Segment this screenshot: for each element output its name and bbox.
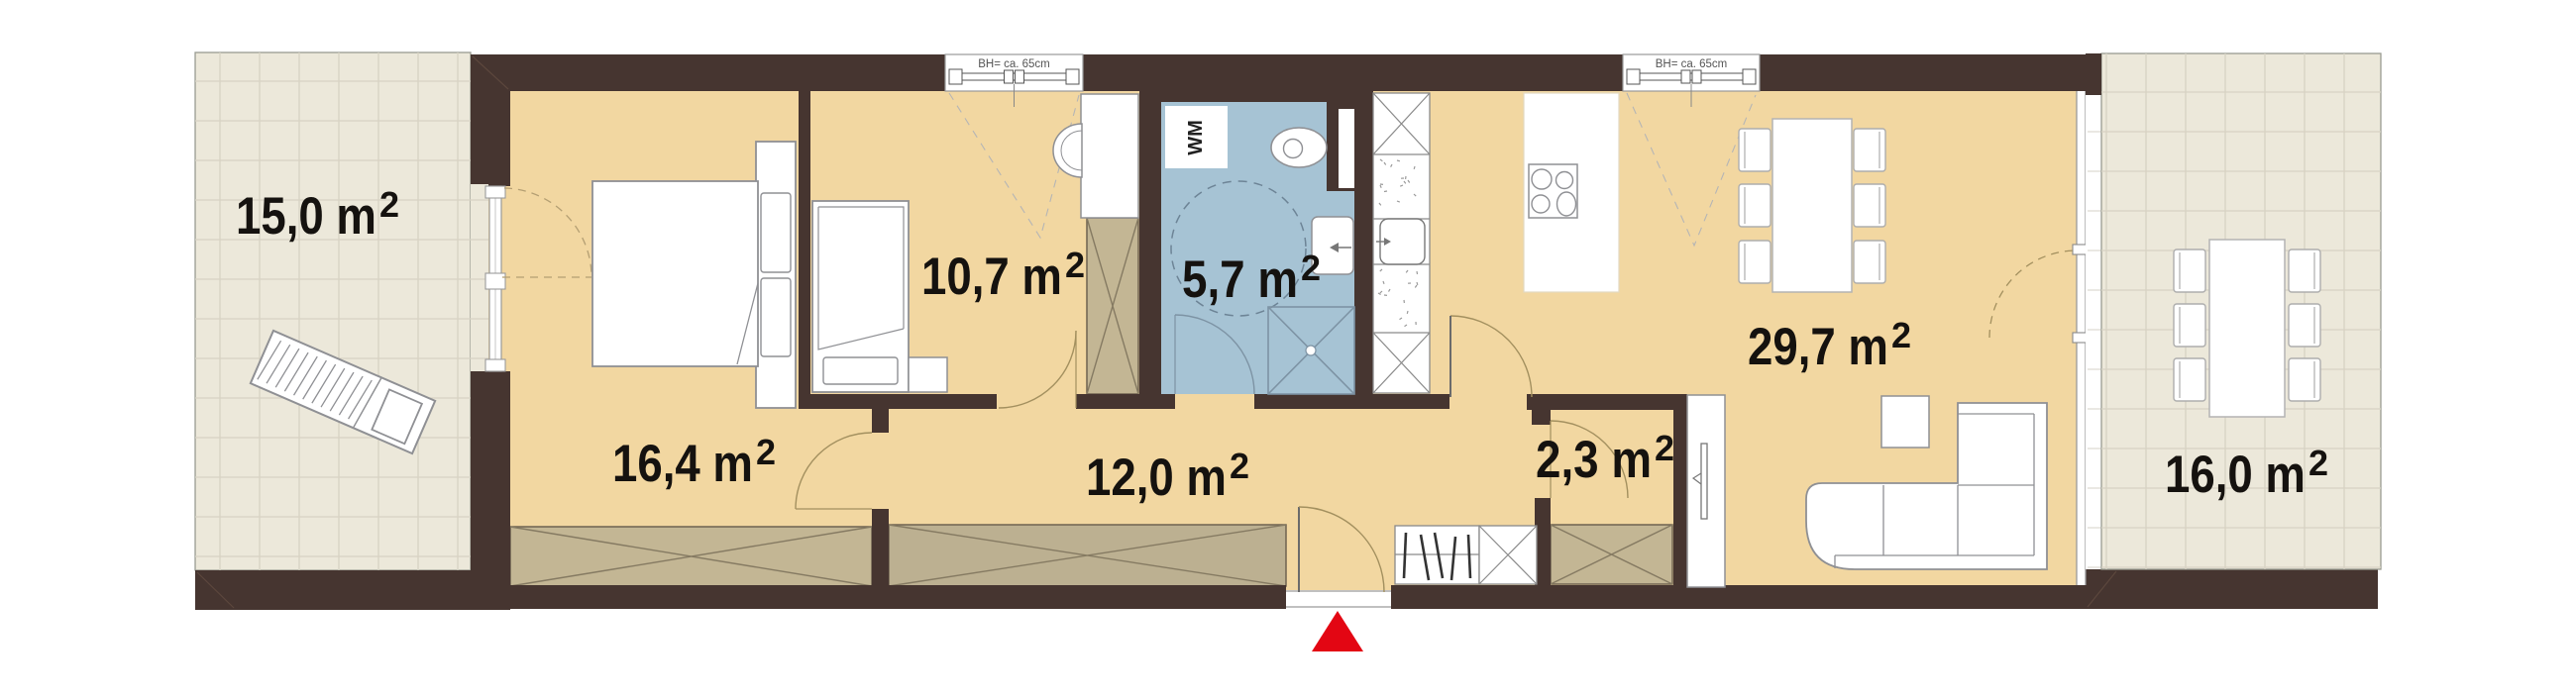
svg-text:BH= ca. 65cm: BH= ca. 65cm — [978, 58, 1050, 70]
svg-text:16,4 m: 16,4 m — [612, 435, 753, 493]
svg-text:BH= ca. 65cm: BH= ca. 65cm — [1656, 58, 1728, 70]
svg-text:2: 2 — [379, 184, 399, 225]
svg-text:2: 2 — [756, 432, 776, 472]
svg-text:WM: WM — [1185, 120, 1207, 155]
svg-text:2: 2 — [1301, 248, 1321, 288]
svg-text:2: 2 — [1655, 428, 1674, 468]
svg-text:29,7 m: 29,7 m — [1748, 318, 1888, 376]
svg-text:2: 2 — [2308, 443, 2328, 483]
svg-text:5,7 m: 5,7 m — [1182, 250, 1298, 309]
svg-text:16,0 m: 16,0 m — [2165, 446, 2306, 504]
svg-text:10,7 m: 10,7 m — [921, 248, 1062, 306]
svg-text:2: 2 — [1891, 315, 1911, 355]
svg-text:2: 2 — [1065, 245, 1085, 285]
svg-text:2: 2 — [1230, 446, 1249, 486]
svg-text:15,0 m: 15,0 m — [236, 187, 376, 246]
svg-text:12,0 m: 12,0 m — [1086, 449, 1227, 507]
svg-text:2,3 m: 2,3 m — [1536, 431, 1652, 489]
